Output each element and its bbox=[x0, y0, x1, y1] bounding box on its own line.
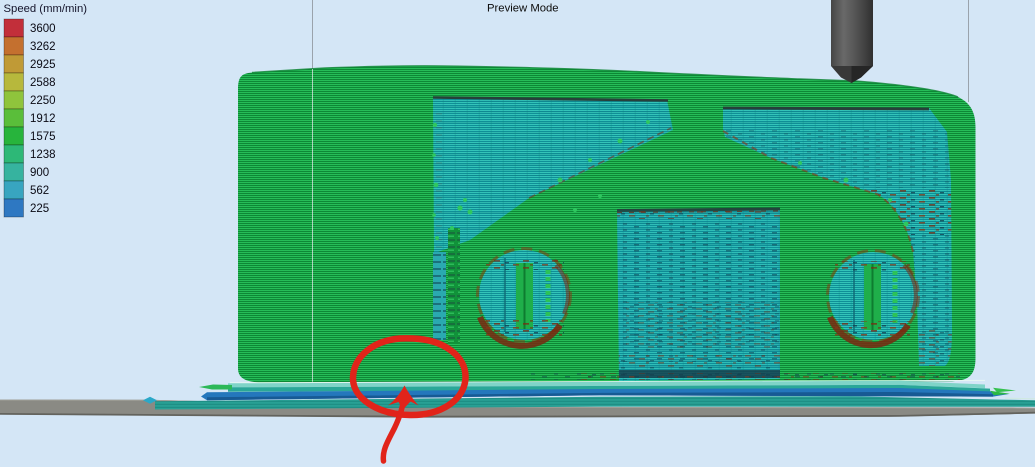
svg-text:2588: 2588 bbox=[30, 77, 56, 89]
svg-text:900: 900 bbox=[30, 167, 49, 179]
svg-text:1575: 1575 bbox=[30, 131, 56, 143]
svg-text:Preview Mode: Preview Mode bbox=[487, 3, 559, 15]
svg-text:2925: 2925 bbox=[30, 59, 56, 71]
svg-text:562: 562 bbox=[30, 185, 49, 197]
svg-text:Speed (mm/min): Speed (mm/min) bbox=[4, 3, 88, 15]
svg-text:225: 225 bbox=[30, 203, 49, 215]
svg-text:3600: 3600 bbox=[30, 23, 56, 35]
svg-text:2250: 2250 bbox=[30, 95, 56, 107]
svg-text:3262: 3262 bbox=[30, 41, 56, 53]
svg-text:1912: 1912 bbox=[30, 113, 56, 125]
svg-text:1238: 1238 bbox=[30, 149, 56, 161]
